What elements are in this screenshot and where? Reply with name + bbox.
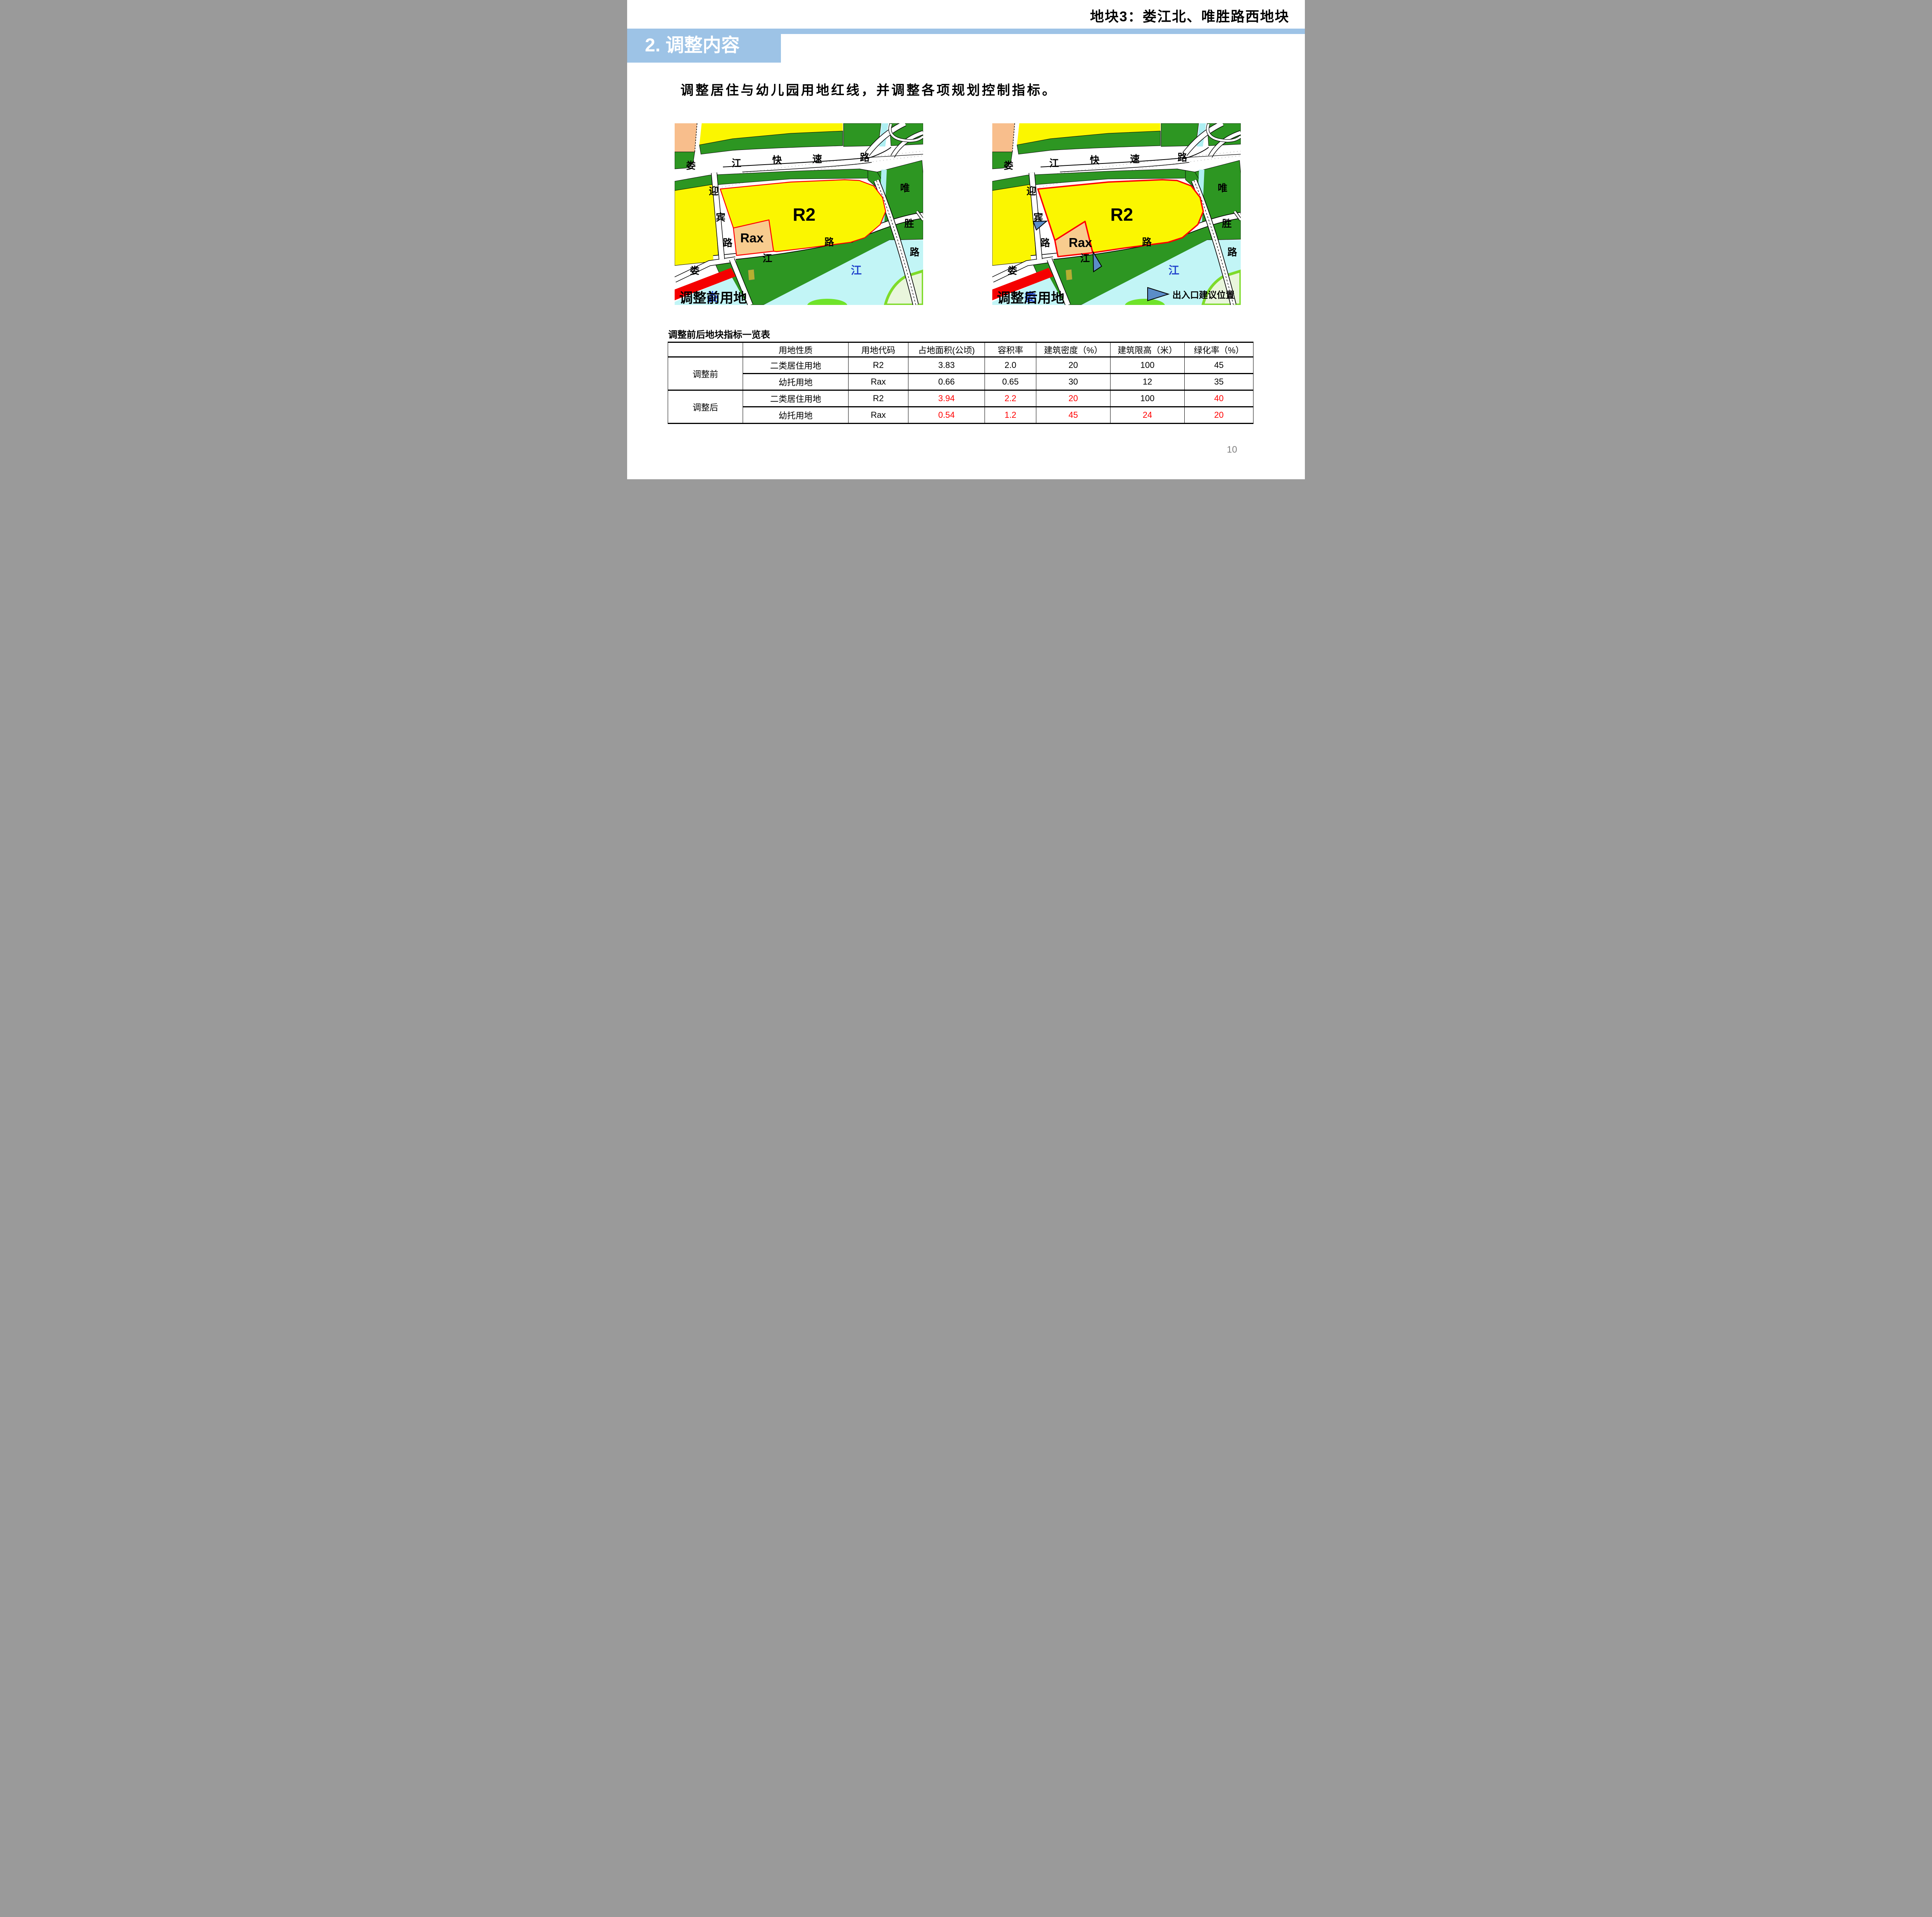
orange-parcel — [992, 123, 1015, 152]
yingbin-road-label-char: 迎 — [1026, 186, 1036, 197]
expressway-label-char: 江 — [731, 158, 741, 169]
table-cell: 20 — [1036, 390, 1111, 407]
row-group-label: 调整后 — [668, 390, 743, 424]
expressway-label-char: 娄 — [1003, 160, 1013, 171]
map-caption: 调整后用地 — [997, 291, 1065, 305]
map-caption: 调整前用地 — [679, 291, 747, 305]
corner-cell — [668, 342, 743, 357]
riverside-road-label-char: 江 — [1080, 253, 1090, 264]
col-header: 建筑密度（%） — [1036, 342, 1111, 357]
table-cell: 3.83 — [908, 357, 985, 374]
table-cell: 20 — [1185, 407, 1253, 424]
table-cell: 100 — [1111, 390, 1185, 407]
page-number: 10 — [1227, 444, 1237, 455]
col-header: 用地性质 — [743, 342, 849, 357]
table-caption: 调整前后地块指标一览表 — [668, 327, 770, 340]
expressway-label-char: 路 — [1177, 152, 1187, 163]
col-header: 绿化率（%） — [1185, 342, 1253, 357]
table-row: 调整前二类居住用地R23.832.02010045 — [668, 357, 1253, 374]
row-group-label: 调整前 — [668, 357, 743, 390]
table-cell: 35 — [1185, 374, 1253, 390]
weisheng-road-label-char: 路 — [1227, 247, 1237, 258]
weisheng-road-label-char: 唯 — [1218, 183, 1227, 194]
expressway-label-char: 江 — [1049, 158, 1059, 169]
yingbin-road-label-char: 宾 — [716, 212, 725, 223]
page-title: 地块3：娄江北、唯胜路西地块 — [1090, 5, 1289, 26]
yingbin-road-label-char: 迎 — [709, 186, 718, 197]
yingbin-road-label-char: 路 — [1040, 238, 1050, 249]
table-cell: 幼托用地 — [743, 407, 849, 424]
rax-label: Rax — [1069, 235, 1092, 250]
olive-parcel — [748, 269, 755, 280]
riverside-road-label-char: 娄 — [1007, 266, 1017, 276]
weisheng-road-label-char: 唯 — [900, 183, 910, 194]
table-cell: 幼托用地 — [743, 374, 849, 390]
slide: 地块3：娄江北、唯胜路西地块 2. 调整内容 调整居住与幼儿园用地红线，并调整各… — [627, 0, 1305, 479]
expressway-label-char: 路 — [860, 152, 870, 163]
table-cell: 24 — [1111, 407, 1185, 424]
table-cell: 2.0 — [985, 357, 1036, 374]
expressway-label-char: 娄 — [686, 160, 696, 171]
table-cell: 45 — [1036, 407, 1111, 424]
table-row: 调整后二类居住用地R23.942.22010040 — [668, 390, 1253, 407]
rax-label: Rax — [740, 231, 764, 245]
table-cell: 30 — [1036, 374, 1111, 390]
col-header: 占地面积(公顷) — [908, 342, 985, 357]
table-body: 调整前二类居住用地R23.832.02010045幼托用地Rax0.660.65… — [668, 357, 1253, 424]
subtitle: 调整居住与幼儿园用地红线，并调整各项规划控制指标。 — [680, 80, 1057, 99]
expressway-label-char: 速 — [1130, 154, 1139, 165]
indicator-table: 用地性质用地代码占地面积(公顷)容积率建筑密度（%）建筑限高（米）绿化率（%） … — [668, 342, 1253, 424]
col-header: 建筑限高（米） — [1111, 342, 1185, 357]
riverside-road-label-char: 江 — [762, 253, 772, 264]
table-header-row: 用地性质用地代码占地面积(公顷)容积率建筑密度（%）建筑限高（米）绿化率（%） — [668, 342, 1253, 357]
table-row: 幼托用地Rax0.660.65301235 — [668, 374, 1253, 390]
table-cell: 1.2 — [985, 407, 1036, 424]
table-cell: 0.65 — [985, 374, 1036, 390]
table-cell: Rax — [849, 407, 908, 424]
river-label: 江 — [851, 264, 862, 276]
table-cell: Rax — [849, 374, 908, 390]
olive-parcel — [1066, 269, 1072, 280]
table-cell: R2 — [849, 390, 908, 407]
col-header: 容积率 — [985, 342, 1036, 357]
yingbin-road-label-char: 路 — [723, 238, 733, 249]
table-cell: 2.2 — [985, 390, 1036, 407]
table-cell: 40 — [1185, 390, 1253, 407]
legend-label: 出入口建议位置 — [1172, 290, 1235, 300]
table-cell: 3.94 — [908, 390, 985, 407]
table-cell: 0.54 — [908, 407, 985, 424]
table-cell: 二类居住用地 — [743, 357, 849, 374]
table-cell: 0.66 — [908, 374, 985, 390]
table-cell: R2 — [849, 357, 908, 374]
riverside-road-label-char: 路 — [1142, 237, 1152, 248]
table-cell: 100 — [1111, 357, 1185, 374]
weisheng-road-label-char: 胜 — [1222, 218, 1231, 229]
expressway-label-char: 快 — [772, 155, 782, 166]
weisheng-road-label-char: 胜 — [904, 218, 914, 229]
orange-parcel — [675, 123, 697, 152]
table-row: 幼托用地Rax0.541.2452420 — [668, 407, 1253, 424]
table-cell: 45 — [1185, 357, 1253, 374]
expressway-label-char: 速 — [812, 154, 822, 165]
riverside-road-label-char: 路 — [824, 237, 834, 248]
r2-label: R2 — [793, 204, 816, 225]
map-before-adjustment: 娄江快速路迎宾路唯胜路娄江路江娄R2Rax调整前用地 — [675, 123, 923, 305]
expressway-label-char: 快 — [1090, 155, 1100, 166]
river-label: 江 — [1168, 264, 1179, 276]
section-header: 2. 调整内容 — [627, 29, 781, 63]
r2-label: R2 — [1111, 204, 1133, 225]
col-header: 用地代码 — [849, 342, 908, 357]
table-cell: 12 — [1111, 374, 1185, 390]
table-cell: 二类居住用地 — [743, 390, 849, 407]
riverside-road-label-char: 娄 — [690, 266, 699, 276]
map-after-adjustment: 娄江快速路迎宾路唯胜路娄江路江娄R2Rax出入口建议位置调整后用地 — [992, 123, 1241, 305]
weisheng-road-label-char: 路 — [910, 247, 920, 258]
table-wrapper: 用地性质用地代码占地面积(公顷)容积率建筑密度（%）建筑限高（米）绿化率（%） … — [668, 342, 1253, 424]
table-cell: 20 — [1036, 357, 1111, 374]
